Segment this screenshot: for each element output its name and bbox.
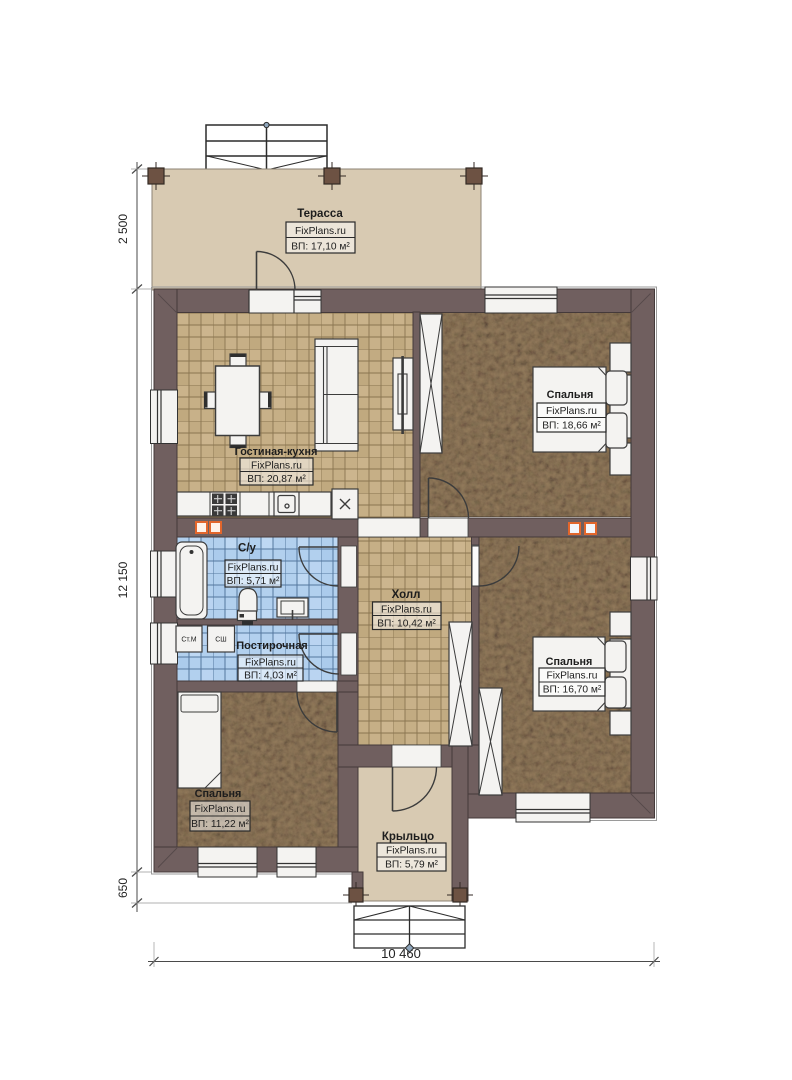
svg-text:Ст.М: Ст.М [181,637,196,644]
svg-text:FixPlans.ru: FixPlans.ru [245,658,296,669]
svg-text:ВП: 18,66 м²: ВП: 18,66 м² [542,421,601,432]
svg-text:ВП: 5,79 м²: ВП: 5,79 м² [385,860,438,871]
svg-text:Терасса: Терасса [297,208,343,220]
svg-text:Крыльцо: Крыльцо [382,831,434,843]
svg-text:Спальня: Спальня [195,788,242,800]
svg-text:Гостиная-кухня: Гостиная-кухня [235,446,318,458]
svg-text:12 150: 12 150 [116,561,130,598]
svg-text:FixPlans.ru: FixPlans.ru [386,846,437,857]
svg-text:650: 650 [116,878,130,898]
svg-text:FixPlans.ru: FixPlans.ru [547,671,598,682]
svg-text:СШ: СШ [215,637,226,644]
svg-text:Постирочная: Постирочная [236,640,307,652]
svg-text:FixPlans.ru: FixPlans.ru [228,563,279,574]
svg-text:ВП: 11,22 м²: ВП: 11,22 м² [191,819,249,830]
svg-text:FixPlans.ru: FixPlans.ru [381,605,432,616]
svg-text:Спальня: Спальня [546,656,593,668]
svg-text:ВП: 20,87 м²: ВП: 20,87 м² [247,474,306,485]
svg-text:2 500: 2 500 [116,214,130,244]
svg-text:FixPlans.ru: FixPlans.ru [251,461,302,472]
svg-text:FixPlans.ru: FixPlans.ru [195,804,246,815]
svg-text:ВП: 5,71 м²: ВП: 5,71 м² [227,576,280,587]
svg-text:FixPlans.ru: FixPlans.ru [295,226,346,237]
svg-text:Холл: Холл [392,589,421,601]
svg-text:С/у: С/у [238,543,257,555]
svg-text:Спальня: Спальня [547,389,594,401]
svg-text:ВП: 10,42 м²: ВП: 10,42 м² [377,619,436,630]
svg-text:FixPlans.ru: FixPlans.ru [546,406,597,417]
svg-text:ВП: 17,10 м²: ВП: 17,10 м² [291,242,350,253]
svg-text:ВП: 4,03 м²: ВП: 4,03 м² [244,671,297,682]
svg-text:ВП: 16,70 м²: ВП: 16,70 м² [543,685,602,696]
